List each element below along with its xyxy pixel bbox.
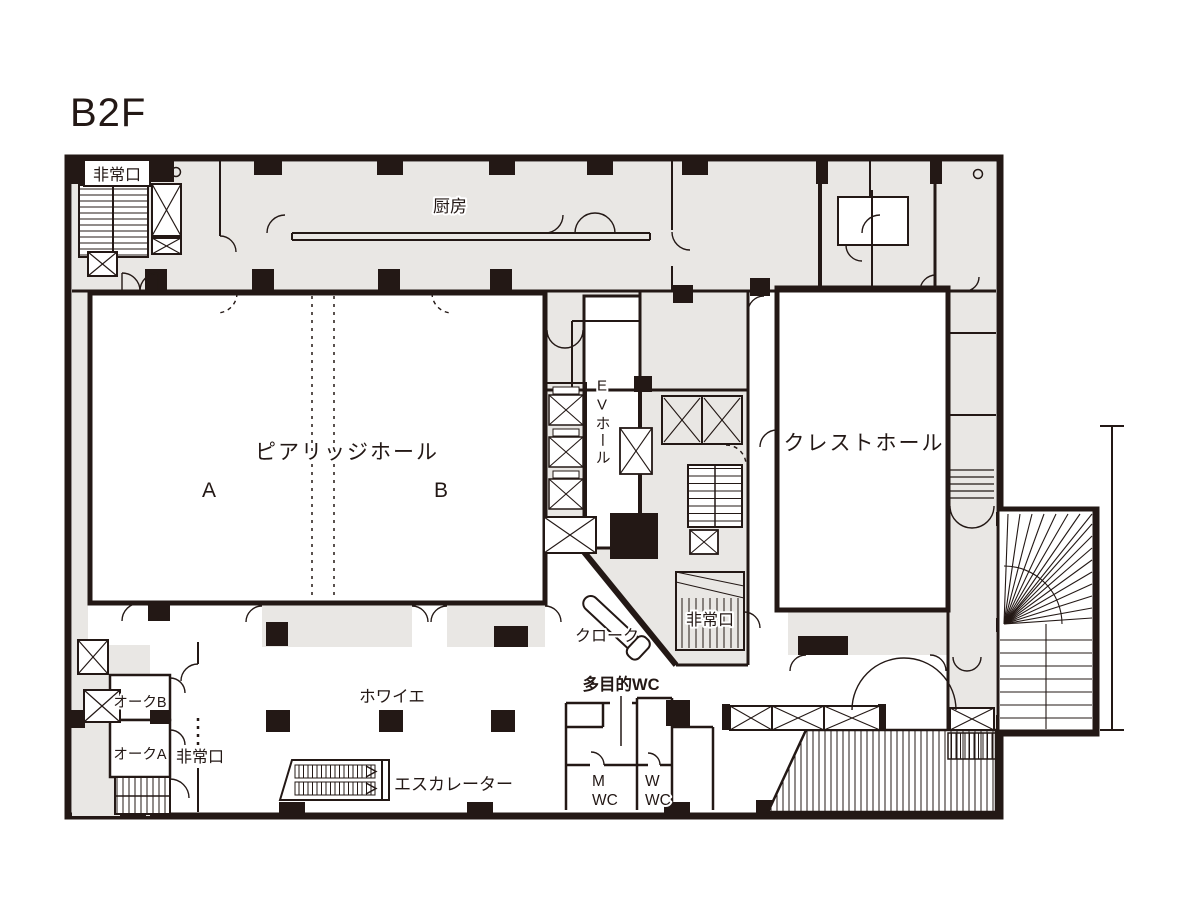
stair-top-left [79, 185, 148, 257]
label-exit-center: 非常口 [686, 611, 734, 629]
label-kitchen: 厨房 [433, 197, 467, 216]
label-pia-ridge-hall: ピアリッジホール [255, 441, 439, 464]
label-mens-wc-line1: M [592, 773, 605, 790]
label-crest-hall: クレストホール [784, 432, 945, 455]
stair-bottom-left [115, 777, 170, 814]
label-oak-a: オークA [113, 746, 166, 763]
label-multipurpose-wc: 多目的WC [583, 674, 660, 694]
label-hall-a: A [202, 479, 216, 502]
label-womens-wc-line1: W [645, 773, 660, 790]
label-cloak: クローク [575, 627, 639, 645]
floor-plan-svg: B2F 非常口 厨房 ピアリッジホール A B EVホール クレストホール 非常… [0, 0, 1200, 924]
label-exit-bottom: 非常口 [176, 748, 224, 766]
label-exit-top-left: 非常口 [93, 166, 141, 184]
ev-hall-room [584, 296, 640, 548]
annex-wall [1100, 426, 1124, 730]
label-ev-hall: EVホール [594, 378, 611, 467]
floor-plan-page: B2F 非常口 厨房 ピアリッジホール A B EVホール クレストホール 非常… [0, 0, 1200, 924]
label-escalator: エスカレーター [394, 775, 513, 794]
label-hall-b: B [434, 479, 448, 502]
page-title: B2F [70, 91, 146, 135]
label-mens-wc-line2: WC [592, 792, 618, 809]
escalator-icon [280, 760, 389, 800]
stair-core-upper [688, 465, 742, 527]
label-womens-wc-line2: WC [645, 792, 671, 809]
grand-fan-staircase [998, 510, 1094, 731]
label-oak-b: オークB [113, 694, 166, 711]
label-foyer: ホワイエ [359, 688, 425, 706]
planter-row-bottom [730, 706, 994, 730]
rear-hatch-steps [948, 733, 996, 759]
